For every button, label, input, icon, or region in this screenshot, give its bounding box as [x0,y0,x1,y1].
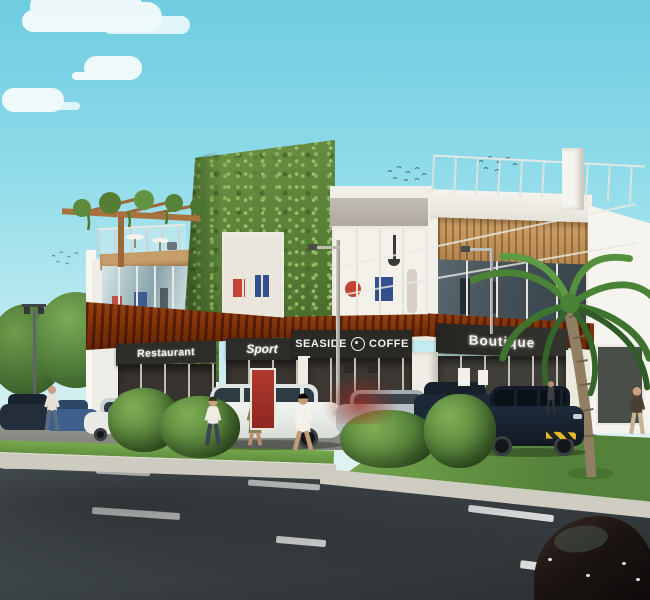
pedestrian [624,386,650,450]
pedestrian [542,380,560,426]
canopy-spotlight [344,364,354,373]
car-windshield [552,522,609,555]
car-wheel [94,428,107,441]
lane-marking [276,536,326,547]
sign-restaurant: Restaurant [116,340,216,365]
sign-sport: Sport [226,338,298,360]
coffee-logo-icon [351,337,365,351]
pergola [58,190,208,270]
window-poster [458,368,470,386]
cloud [2,88,64,112]
roof-corner-pillar [562,148,584,210]
pedestrian [40,384,64,446]
street-lamp-head [24,307,30,314]
sign-sport-label: Sport [246,342,277,356]
window-display-blue [255,275,269,297]
lamp-head [308,244,317,250]
sign-restaurant-label: Restaurant [137,346,195,360]
bush [424,394,496,468]
storefront-seaside-coffee [308,358,412,434]
car-headlight [573,414,582,419]
yellow-black-wheel-stop [546,431,576,439]
birds-flock-icon [385,162,429,188]
pendant-lamp [388,259,400,266]
sign-coffee-label: COFFE [369,338,409,350]
car-glint [586,574,590,577]
pedestrian [288,392,318,470]
light-pole-arm [314,246,340,249]
car-glint [548,558,552,561]
window-poster [478,370,488,385]
car-glint [636,578,640,581]
mannequin [407,269,417,313]
cloud [30,0,142,28]
window-display-red [233,279,245,297]
car-glint [622,562,626,565]
lane-marking [248,479,320,490]
street-lamp-head [38,307,44,314]
canopy-spotlight [368,364,378,373]
pedestrian [200,396,226,462]
lane-marking [468,505,554,522]
rendering-scene: Restaurant Sport SEASIDE COFFE Boutique [0,0,650,600]
red-entry-door [250,368,276,430]
cloud [84,56,142,80]
cafe-interior-glow [322,374,398,424]
sign-seaside-coffee: SEASIDE COFFE [292,330,412,358]
lane-marking [92,507,180,520]
